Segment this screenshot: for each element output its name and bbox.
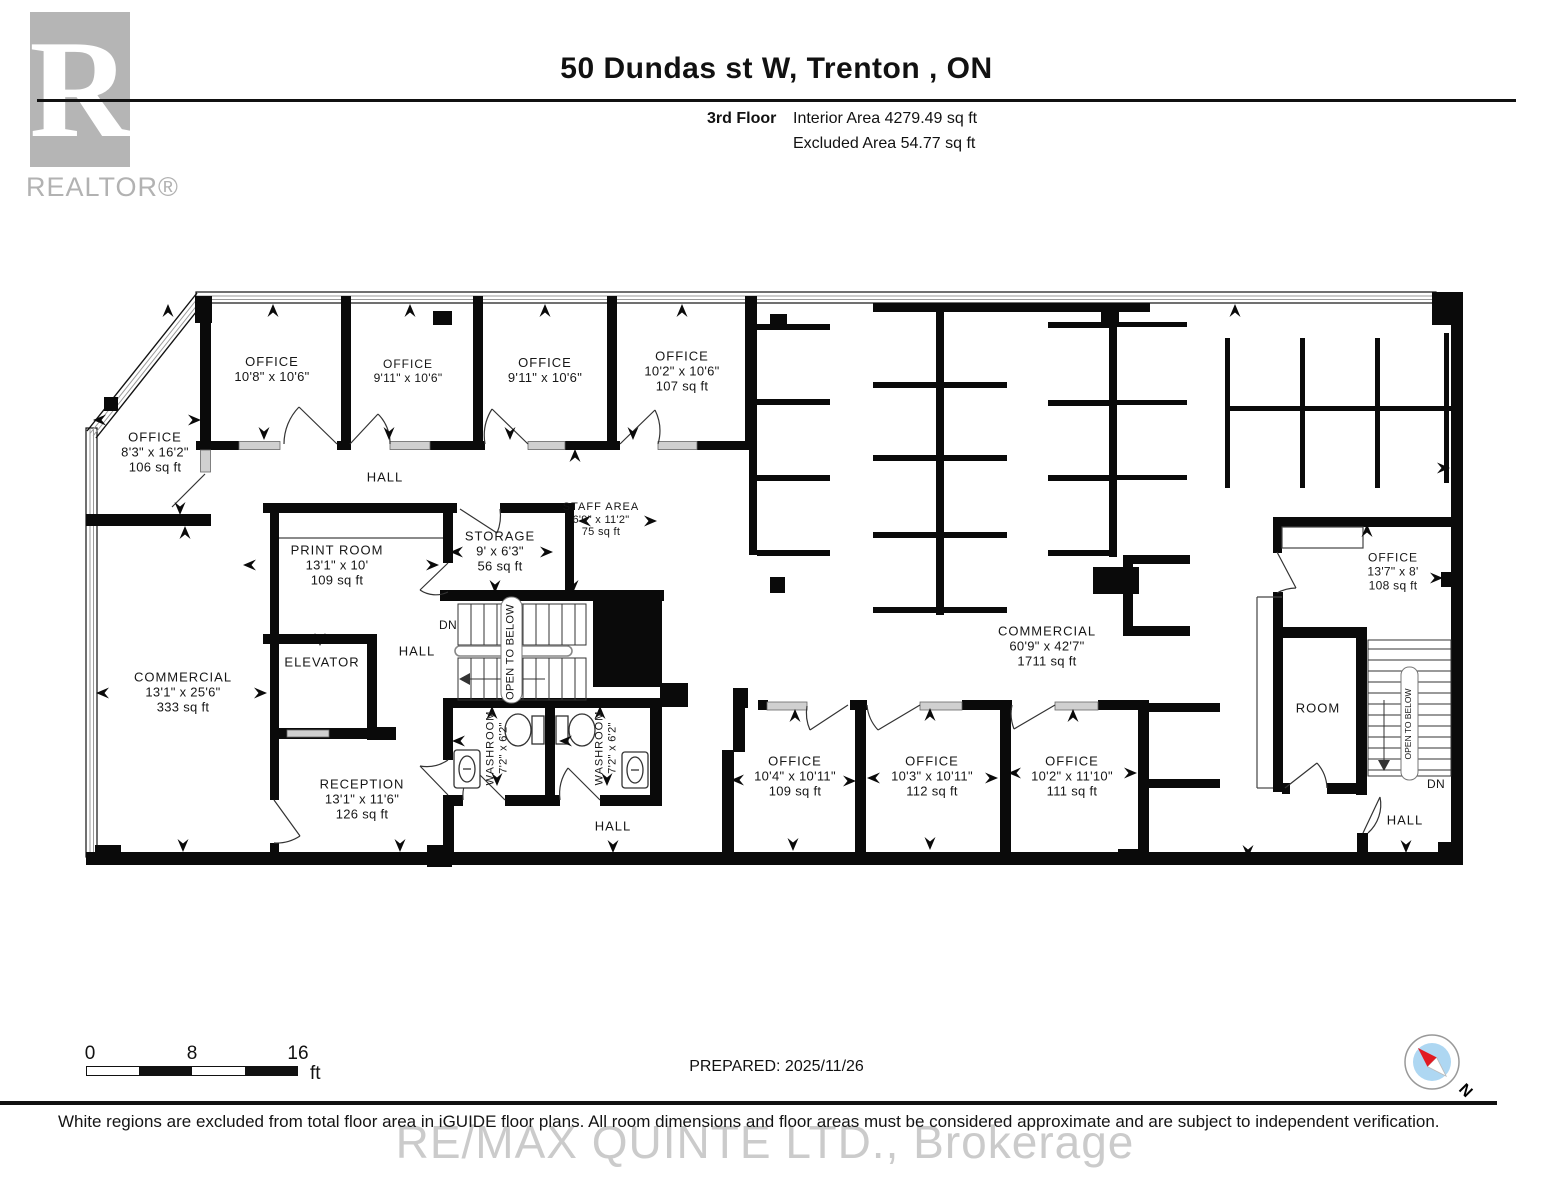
room-label-office-b3: OFFICE 10'2" x 11'10" 111 sq ft xyxy=(1031,755,1113,800)
floor-plan-drawing xyxy=(0,0,1553,1200)
stairs-center xyxy=(455,597,586,703)
room-label-office-right: OFFICE 13'7" x 8' 108 sq ft xyxy=(1367,551,1418,592)
floor-plan-page: R REALTOR® 50 Dundas st W, Trenton , ON … xyxy=(0,0,1553,1200)
room-label-storage: STORAGE 9' x 6'3" 56 sq ft xyxy=(465,530,535,575)
room-label-elevator: ELEVATOR xyxy=(284,656,359,671)
room-label-office-t3: OFFICE 9'11" x 10'6" xyxy=(508,356,582,386)
open-to-below-label-right: OPEN TO BELOW xyxy=(1404,688,1414,759)
thin-partitions xyxy=(279,527,1363,788)
hall-label-mid: HALL xyxy=(399,645,436,660)
room-label-office-t2: OFFICE 9'11" x 10'6" xyxy=(374,358,443,386)
room-label-office-t4: OFFICE 10'2" x 10'6" 107 sq ft xyxy=(644,350,719,395)
toilet-bowl-icon xyxy=(569,714,595,746)
prepared-date: PREPARED: 2025/11/26 xyxy=(0,1058,1553,1076)
room-label-staff-area: STAFF AREA 6'9" x 11'2" 75 sq ft xyxy=(563,501,639,539)
room-label-office-t1: OFFICE 10'8" x 10'6" xyxy=(234,355,309,385)
hall-label-bottom: HALL xyxy=(595,820,632,835)
compass-north-label: N xyxy=(1455,1081,1475,1101)
room-label-office-b2: OFFICE 10'3" x 10'11" 112 sq ft xyxy=(891,755,973,800)
interior-sills xyxy=(201,442,1099,738)
footer-rule xyxy=(0,1101,1497,1105)
room-label-room: ROOM xyxy=(1296,702,1340,717)
room-label-office-b1: OFFICE 10'4" x 10'11" 109 sq ft xyxy=(754,755,836,800)
room-label-print-room: PRINT ROOM 13'1" x 10' 109 sq ft xyxy=(291,544,384,589)
room-label-washroom-2: WASHROOM 7'2" x 6'2" xyxy=(593,711,618,786)
room-label-office-corner: OFFICE 8'3" x 16'2" 106 sq ft xyxy=(121,431,189,476)
room-label-commercial-left: COMMERCIAL 13'1" x 25'6" 333 sq ft xyxy=(134,671,232,716)
room-label-washroom-1: WASHROOM 7'2" x 6'2" xyxy=(484,711,509,786)
dn-label-mid: DN xyxy=(439,619,457,633)
dn-label-right: DN xyxy=(1427,778,1445,792)
room-label-commercial-main: COMMERCIAL 60'9" x 42'7" 1711 sq ft xyxy=(998,625,1096,670)
hall-label-top: HALL xyxy=(367,471,404,486)
compass-icon: N xyxy=(1398,1028,1478,1103)
toilet-tank-icon xyxy=(532,716,544,744)
open-to-below-label-mid: OPEN TO BELOW xyxy=(505,604,518,700)
disclaimer-text: White regions are excluded from total fl… xyxy=(58,1112,1440,1132)
hall-label-right: HALL xyxy=(1387,814,1424,829)
room-label-reception: RECEPTION 13'1" x 11'6" 126 sq ft xyxy=(320,778,405,823)
